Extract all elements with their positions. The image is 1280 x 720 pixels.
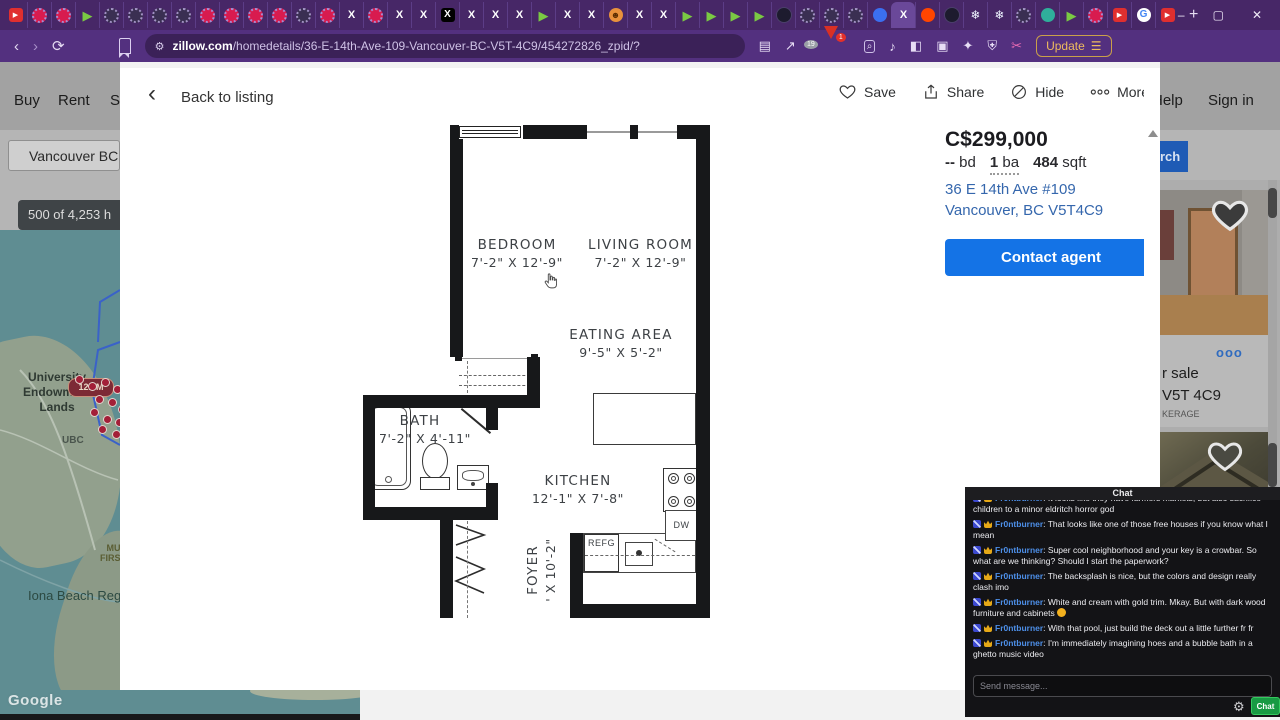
x-favicon: X [345,8,359,22]
chat-message: Fr0ntburner: That looks like one of thos… [969,517,1276,543]
chat-username[interactable]: Fr0ntburner [995,638,1043,648]
x-favicon: X [393,8,407,22]
modal-scroll-arrow-icon[interactable] [1148,130,1158,137]
sparkle-extension-icon[interactable]: ✦ [962,38,973,54]
browser-tab-green[interactable]: ▶ [675,2,699,28]
dishwasher: DW [665,510,698,541]
favorite-heart-icon-2[interactable] [1206,438,1244,474]
floorplan-wall [440,520,453,618]
sword-badge-icon [973,572,981,580]
dark-favicon [776,7,792,23]
browser-tab-snow[interactable]: ❄ [987,2,1011,28]
adblock-count-badge: 1 [836,33,846,42]
x-favicon: X [633,8,647,22]
find-extension-icon[interactable]: ⌕ [864,40,876,53]
page-scrollbar-thumb-2[interactable] [1268,443,1277,487]
red-favicon [32,8,47,23]
globe-favicon [296,8,311,23]
browser-tab-x[interactable]: X [651,2,675,28]
floorplan-wall [630,125,638,139]
browser-tab-red[interactable] [363,2,387,28]
darkmode-extension-icon[interactable]: ◧ [910,38,922,54]
back-to-listing-link[interactable]: Back to listing [181,89,274,106]
page-scrollbar-thumb[interactable] [1268,188,1277,218]
green-favicon: ▶ [681,8,695,22]
chat-text: : With that pool, just build the deck ou… [1043,623,1253,633]
nav-rent[interactable]: Rent [58,92,90,109]
map-listing-dot[interactable] [103,415,112,424]
floorplan-wall [450,125,459,139]
chat-username[interactable]: Fr0ntburner [995,545,1043,555]
address-line-1[interactable]: 36 E 14th Ave #109 [945,181,1076,198]
x-favicon: X [561,8,575,22]
map-listing-dot[interactable] [108,398,117,407]
browser-chrome: ▶▶XXXXXXX▶XX☻XX▶▶▶▶X❄❄▶▶G▶+ – ▢ ✕ ‹ › ⟳ … [0,0,1280,62]
browser-tab-globe[interactable] [171,2,195,28]
adblock-extension-icon[interactable]: 1 [824,39,838,54]
google-logo: Google [8,692,63,709]
forward-nav-icon[interactable]: › [33,38,38,55]
sword-badge-icon [973,639,981,647]
back-nav-icon[interactable]: ‹ [14,38,19,55]
ytr-favicon: ▶ [1113,8,1127,22]
sword-badge-icon [973,598,981,606]
map-listing-dot[interactable] [88,382,97,391]
share-page-icon[interactable]: ↗ [785,38,796,54]
floorplan-wall [696,125,710,618]
floor-plan-image[interactable]: DW REFG BEDROOM7'-2" X 12'-9" LIVING ROO… [363,125,710,618]
browser-tab-snow[interactable]: ❄ [963,2,987,28]
room-label-bath: BATH7'-2" X 4'-11" [370,413,470,446]
floorplan-wall [363,507,498,520]
x-favicon: X [585,8,599,22]
globe-favicon [1016,8,1031,23]
x-favicon: X [465,8,479,22]
nav-sign-in[interactable]: Sign in [1208,92,1254,109]
browser-tab-globe[interactable] [1011,2,1035,28]
globe-favicon [824,8,839,23]
nav-buy[interactable]: Buy [14,92,40,109]
close-button[interactable]: ✕ [1252,8,1262,22]
card-sale-label: r sale [1162,365,1199,382]
browser-tab-globe[interactable] [819,2,843,28]
green-favicon: ▶ [705,8,719,22]
music-extension-icon[interactable]: ♪ [889,39,896,54]
snow-favicon: ❄ [993,8,1007,22]
crown-badge-icon [984,546,992,554]
browser-tab-green[interactable]: ▶ [699,2,723,28]
browser-tab-globe[interactable] [123,2,147,28]
listing-price: C$299,000 [945,128,1048,152]
window-controls: – ▢ ✕ [1160,0,1280,30]
floorplan-wall [486,483,498,520]
browser-tab-red[interactable] [243,2,267,28]
browser-tab-x[interactable]: X [483,2,507,28]
chat-messages[interactable]: Fr0ntburner: It looks like they have far… [969,500,1276,660]
browser-tab-x[interactable]: X [627,2,651,28]
browser-tab-dark[interactable] [771,2,795,28]
more-button[interactable]: More [1090,84,1149,100]
chat-header: Chat [965,487,1280,500]
browser-tab-globe[interactable] [843,2,867,28]
red-favicon [272,8,287,23]
browser-tab-x[interactable]: X [411,2,435,28]
save-button[interactable]: Save [838,83,896,101]
card-info[interactable]: ooo r sale V5T 4C9 KERAGE [1160,335,1268,427]
map-listing-dot[interactable] [75,375,84,384]
shield-count-badge: 19 [804,40,818,49]
floorplan-wall [363,395,455,408]
green-favicon: ▶ [729,8,743,22]
browser-toolbar: ‹ › ⟳ ⚙ zillow.com/homedetails/36-E-14th… [0,30,1280,62]
refrigerator: REFG [584,534,619,572]
hide-button[interactable]: Hide [1010,83,1064,101]
chat-username[interactable]: Fr0ntburner [995,519,1043,529]
menu-icon: ☰ [1091,39,1102,53]
google-favicon: G [1137,8,1151,22]
bathroom-sink [457,465,489,490]
map-listing-dot[interactable] [90,408,99,417]
browser-tab-red[interactable] [219,2,243,28]
toilet [422,443,448,479]
hide-icon [1010,83,1028,101]
floorplan-wall [363,408,375,507]
crown-badge-icon [984,639,992,647]
browser-tab-ytr[interactable]: ▶ [1107,2,1131,28]
map-label-reserve: MUFIRS [100,543,120,563]
tab-strip: ▶▶XXXXXXX▶XX☻XX▶▶▶▶X❄❄▶▶G▶+ [0,0,1280,30]
red-favicon [1088,8,1103,23]
chat-send-button[interactable]: Chat [1251,697,1280,715]
xa-favicon: X [897,8,911,22]
crown-badge-icon [984,624,992,632]
reload-icon[interactable]: ⟳ [52,37,65,55]
snow-favicon: ❄ [969,8,983,22]
browser-tab-x[interactable]: X [507,2,531,28]
red-favicon [320,8,335,23]
search-button[interactable]: rch [1160,141,1188,172]
red-favicon [368,8,383,23]
eating-table [593,393,696,445]
contact-agent-button[interactable]: Contact agent [945,239,1157,276]
blue-favicon [873,8,887,22]
browser-tab-x[interactable]: X [387,2,411,28]
update-button[interactable]: Update☰ [1036,35,1111,57]
map-label-beach: Iona Beach Reg [28,588,120,603]
chat-message: Fr0ntburner: White and cream with gold t… [969,595,1276,621]
reader-mode-icon[interactable]: ▤ [759,38,771,54]
chat-message: Fr0ntburner: Super cool neighborhood and… [969,543,1276,569]
browser-tab-red[interactable] [1083,2,1107,28]
browser-tab-red[interactable] [27,2,51,28]
floorplan-wall [455,395,540,408]
browser-tab-yt[interactable]: ▶ [4,2,27,28]
chat-username[interactable]: Fr0ntburner [995,623,1043,633]
globe-favicon [104,8,119,23]
browser-tab-xa-active[interactable]: X [891,2,915,28]
kitchen-sink [625,542,653,566]
bedroom-window [459,126,521,138]
bookmark-icon[interactable] [119,38,131,54]
red-favicon [56,8,71,23]
globe-favicon [800,8,815,23]
map-label-ubc: UBC [62,435,84,446]
globe-favicon [128,8,143,23]
browser-tab-xw[interactable]: X [435,2,459,28]
map-bottom-strip: Google [0,690,360,714]
bird-favicon [1041,8,1055,22]
browser-tab-globe[interactable] [795,2,819,28]
browser-tab-face[interactable]: ☻ [603,2,627,28]
x-favicon: X [417,8,431,22]
hand-cursor-icon [543,273,557,289]
pink-tool-icon[interactable]: ✂ [1011,38,1022,54]
map-listing-dot[interactable] [95,395,104,404]
red-favicon [224,8,239,23]
globe-favicon [176,8,191,23]
share-icon [922,83,940,101]
browser-tab-red[interactable] [267,2,291,28]
site-settings-icon[interactable]: ⚙ [155,40,165,53]
browser-tab-x[interactable]: X [555,2,579,28]
green-favicon: ▶ [81,8,95,22]
floorplan-wall [486,408,498,430]
map-overlay-lines [0,230,120,690]
map-attribution-bar [0,714,360,720]
x-favicon: X [657,8,671,22]
page-scrollbar-track[interactable] [1268,180,1277,487]
back-chevron-icon[interactable]: ‹ [148,84,156,104]
xw-favicon: X [441,8,455,22]
map-listing-dot[interactable] [98,425,107,434]
green-favicon: ▶ [753,8,767,22]
wallet-extension-icon[interactable]: ▣ [936,38,948,54]
crown-badge-icon [984,572,992,580]
stove [663,468,700,512]
share-button[interactable]: Share [922,83,984,101]
map-listing-dot[interactable] [113,385,120,394]
chat-settings-gear-icon[interactable]: ⚙ [1233,699,1245,715]
reddit-favicon [921,8,935,22]
browser-tab-globe[interactable] [99,2,123,28]
browser-tab-green[interactable]: ▶ [75,2,99,28]
x-favicon: X [489,8,503,22]
browser-tab-green[interactable]: ▶ [531,2,555,28]
room-label-livingroom: LIVING ROOM7'-2" X 12'-9" [568,237,713,270]
foyer-closet-doors [453,523,489,601]
chat-message: Fr0ntburner: The backsplash is nice, but… [969,569,1276,595]
address-line-2[interactable]: Vancouver, BC V5T4C9 [945,202,1103,219]
crown-badge-icon [984,598,992,606]
red-favicon [200,8,215,23]
maximize-button[interactable]: ▢ [1213,8,1224,22]
chat-message-input[interactable] [973,675,1272,697]
card-menu-dots[interactable]: ooo [1216,345,1243,360]
browser-tab-globe[interactable] [147,2,171,28]
browser-tab-green[interactable]: ▶ [1059,2,1083,28]
red-favicon [248,8,263,23]
card-brokerage: KERAGE [1162,409,1200,419]
smirk-emote-icon [1057,608,1066,617]
map-listing-dot[interactable] [112,430,120,439]
chat-overlay: Chat Fr0ntburner: It looks like they hav… [965,487,1280,717]
room-label-eatingarea: EATING AREA9'-5" X 5'-2" [551,327,691,360]
x-favicon: X [513,8,527,22]
sword-badge-icon [973,500,981,502]
globe-favicon [152,8,167,23]
crown-badge-icon [984,520,992,528]
dark-favicon [944,7,960,23]
privacy-shield-icon[interactable]: ⛨ [987,38,997,54]
browser-tab-green[interactable]: ▶ [747,2,771,28]
yt-favicon: ▶ [9,8,23,22]
chat-message: Fr0ntburner: I'm immediately imagining h… [969,636,1276,660]
room-label-bedroom: BEDROOM7'-2" X 12'-9" [447,237,587,270]
location-search-input[interactable]: Vancouver BC [8,140,120,171]
room-label-kitchen: KITCHEN12'-1" X 7'-8" [508,473,648,506]
browser-tab-bird[interactable] [1035,2,1059,28]
sword-badge-icon [973,520,981,528]
more-dots-icon [1090,88,1110,96]
globe-favicon [848,8,863,23]
address-bar[interactable]: ⚙ zillow.com/homedetails/36-E-14th-Ave-1… [145,34,745,58]
browser-tab-x[interactable]: X [339,2,363,28]
sword-badge-icon [973,546,981,554]
browser-tab-red[interactable] [315,2,339,28]
card-postal: V5T 4C9 [1162,387,1221,404]
browser-tab-google[interactable]: G [1131,2,1155,28]
floorplan-wall [450,139,463,357]
browser-tab-blue[interactable] [867,2,891,28]
chat-username[interactable]: Fr0ntburner [995,500,1043,503]
green-favicon: ▶ [1065,8,1079,22]
browser-tab-green[interactable]: ▶ [723,2,747,28]
floorplan-wall [570,604,696,618]
map-pane[interactable]: UniversityEndowmentLands UBC Iona Beach … [0,230,120,690]
floorplan-wall [523,125,587,139]
crown-badge-icon [984,500,992,502]
url-text[interactable]: zillow.com/homedetails/36-E-14th-Ave-109… [172,39,639,53]
minimize-button[interactable]: – [1178,8,1185,22]
map-listing-dot[interactable] [101,378,110,387]
listing-facts: -- bd 1 ba 484 sqft [945,154,1086,175]
favorite-heart-icon[interactable] [1210,196,1250,234]
browser-tab-dark[interactable] [939,2,963,28]
green-favicon: ▶ [537,8,551,22]
modal-action-bar: Save Share Hide More [838,83,1149,101]
chat-username[interactable]: Fr0ntburner [995,571,1043,581]
browser-tab-globe[interactable] [291,2,315,28]
floorplan-wall [570,533,583,604]
browser-tab-x[interactable]: X [459,2,483,28]
chat-username[interactable]: Fr0ntburner [995,597,1043,607]
chat-message: Fr0ntburner: With that pool, just build … [969,621,1276,636]
browser-tab-red[interactable] [51,2,75,28]
browser-tab-reddit[interactable] [915,2,939,28]
heart-icon [838,83,857,101]
sword-badge-icon [973,624,981,632]
face-favicon: ☻ [609,8,623,22]
browser-tab-red[interactable] [195,2,219,28]
browser-tab-x[interactable]: X [579,2,603,28]
chat-message: Fr0ntburner: It looks like they have far… [969,500,1276,517]
